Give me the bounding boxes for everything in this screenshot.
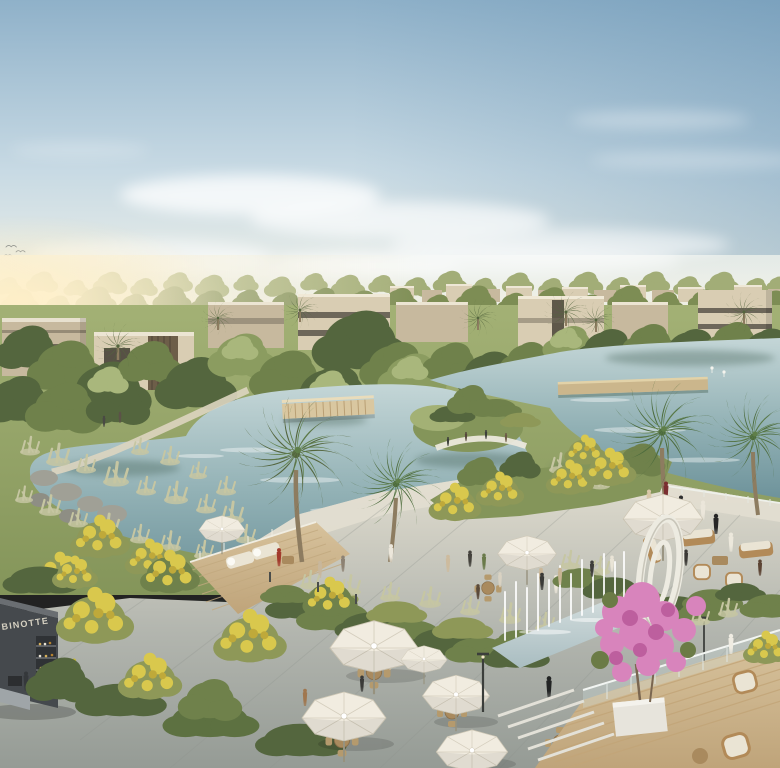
wicker-chair	[694, 565, 710, 579]
villa	[396, 302, 468, 342]
yellow-flower-tree	[56, 587, 134, 644]
coffee-table	[712, 556, 728, 565]
scene-canvas: Aerial architectural rendering of a lago…	[0, 0, 780, 768]
lagoon-community-render: Aerial architectural rendering of a lago…	[0, 0, 780, 768]
espresso-machine	[8, 676, 22, 686]
armchair	[732, 670, 758, 695]
deck-side-table	[282, 556, 294, 564]
side-table	[692, 748, 708, 764]
